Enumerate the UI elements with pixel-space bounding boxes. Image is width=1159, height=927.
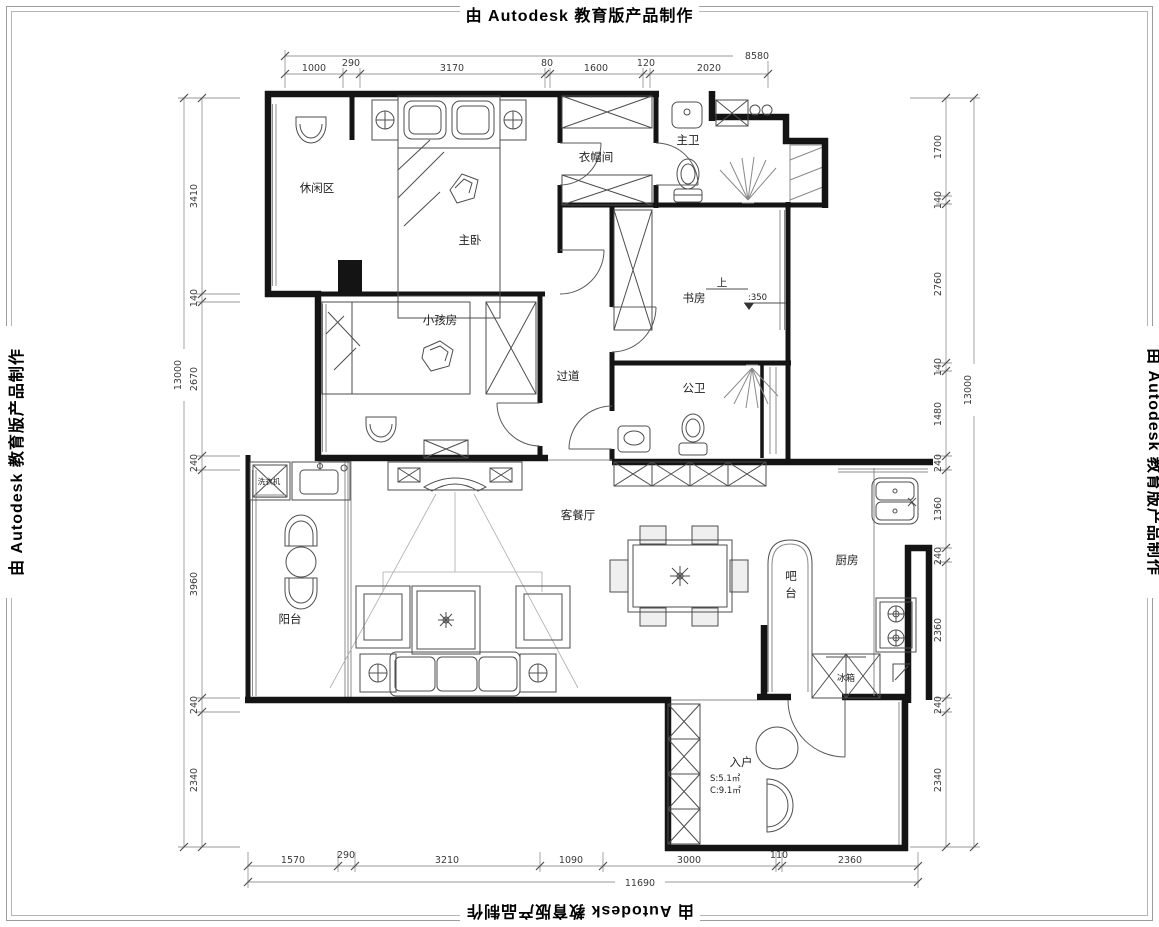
- door-master-bath: [656, 143, 698, 185]
- furniture-hall-cabinets: [614, 462, 766, 486]
- dim-ticks-right: [942, 94, 978, 851]
- dim-right-10: 2340: [933, 768, 944, 792]
- dim-top-1: 290: [342, 58, 360, 69]
- furniture-dining-set: [610, 526, 748, 626]
- dim-top-total: 8580: [745, 51, 769, 62]
- dimension-chain-left: 3410 140 2670 240 3960 240 2340 13000: [173, 94, 240, 851]
- room-label-leisure: 休闲区: [300, 181, 335, 195]
- room-label-corridor: 过道: [557, 369, 580, 383]
- room-label-cloakroom: 衣帽间: [579, 150, 614, 164]
- dim-left-5: 240: [189, 696, 200, 714]
- label-washing-machine: 洗衣机: [258, 476, 281, 486]
- dim-right-5: 240: [933, 454, 944, 472]
- door-public-bath: [569, 406, 612, 449]
- dim-left-2: 2670: [189, 367, 200, 391]
- dim-top-2: 3170: [440, 63, 464, 74]
- dim-bottom-1: 290: [337, 850, 355, 861]
- dim-top-5: 120: [637, 58, 655, 69]
- dim-left-0: 3410: [189, 184, 200, 208]
- dim-ext-left: [178, 98, 240, 847]
- dim-right-8: 2360: [933, 618, 944, 642]
- plant-dining-table: [670, 566, 690, 586]
- dim-right-3: 140: [933, 358, 944, 376]
- furniture-bar-counter: [768, 540, 812, 692]
- dim-right-9: 240: [933, 696, 944, 714]
- dim-bottom-4: 3000: [677, 855, 701, 866]
- dim-top-0: 1000: [302, 63, 326, 74]
- dim-right-4: 1480: [933, 402, 944, 426]
- windows: [253, 104, 929, 845]
- room-label-master-bedroom: 主卧: [459, 233, 482, 247]
- dim-right-2: 2760: [933, 272, 944, 296]
- room-label-balcony: 阳台: [279, 612, 302, 626]
- fixture-leisure-basin: [296, 117, 326, 143]
- door-entry: [788, 700, 845, 757]
- room-label-entry: 入户: [730, 755, 753, 769]
- watermark-left: 由 Autodesk 教育版产品制作: [3, 326, 27, 598]
- dim-right-6: 1360: [933, 497, 944, 521]
- column: [338, 260, 362, 294]
- room-label-master-bath: 主卫: [677, 133, 700, 147]
- plant-coffee-table: [438, 612, 454, 628]
- dim-bottom-3: 1090: [559, 855, 583, 866]
- dim-left-3: 240: [189, 454, 200, 472]
- dim-top-3: 80: [541, 58, 553, 69]
- dim-right-7: 240: [933, 547, 944, 565]
- room-label-bar-char2: 台: [785, 586, 797, 600]
- dimension-chain-bottom: 1570 290 3210 1090 3000 110 2360 11690: [244, 850, 922, 889]
- room-label-study: 书房: [683, 291, 706, 305]
- dim-left-1: 140: [189, 289, 200, 307]
- dim-right-1: 140: [933, 191, 944, 209]
- furniture-nightstands-master: [372, 100, 526, 140]
- dim-left-6: 2340: [189, 768, 200, 792]
- dim-right-total: 13000: [963, 375, 974, 405]
- furniture-master-bed: [398, 96, 500, 318]
- door-master-bedroom: [560, 250, 604, 294]
- dim-left-4: 3960: [189, 572, 200, 596]
- label-entry-area: S:5.1㎡: [710, 774, 741, 784]
- furniture-sofa-set: [356, 586, 570, 696]
- watermark-top: 由 Autodesk 教育版产品制作: [460, 2, 700, 26]
- label-fridge: 冰箱: [837, 672, 855, 684]
- dim-bottom-total: 11690: [625, 878, 655, 889]
- watermark-right: 由 Autodesk 教育版产品制作: [1144, 326, 1159, 598]
- drawing-sheet: 休闲区 主卧 衣帽间 主卫 书房 小孩房 过道 公卫 客餐厅 阳台 吧 台 厨房…: [0, 0, 1159, 927]
- room-label-kids-room: 小孩房: [423, 313, 458, 327]
- room-label-public-bath: 公卫: [683, 381, 706, 395]
- room-label-living-dining: 客餐厅: [561, 508, 596, 522]
- label-entry-girth: C:9.1㎡: [710, 786, 741, 796]
- floor-plan-canvas: 休闲区 主卧 衣帽间 主卫 书房 小孩房 过道 公卫 客餐厅 阳台 吧 台 厨房…: [0, 0, 1159, 927]
- door-kids-room: [497, 403, 540, 446]
- room-label-kitchen: 厨房: [836, 553, 859, 567]
- dim-left-total: 13000: [173, 360, 184, 390]
- dimension-chain-top: 1000 290 3170 80 1600 120 2020 8580: [281, 48, 781, 88]
- dim-bottom-2: 3210: [435, 855, 459, 866]
- dim-top-4: 1600: [584, 63, 608, 74]
- label-level: :350: [748, 293, 767, 303]
- doors: [497, 143, 845, 757]
- furniture-study: [614, 210, 786, 330]
- dim-top-6: 2020: [697, 63, 721, 74]
- room-label-bar-char1: 吧: [785, 569, 797, 583]
- fixture-public-bath: [618, 365, 778, 455]
- watermark-bottom: 由 Autodesk 教育版产品制作: [460, 901, 700, 925]
- dim-bottom-0: 1570: [281, 855, 305, 866]
- dim-bottom-5: 110: [770, 850, 788, 861]
- dim-right-0: 1700: [933, 135, 944, 159]
- dim-bottom-6: 2360: [838, 855, 862, 866]
- label-up: 上: [717, 277, 728, 289]
